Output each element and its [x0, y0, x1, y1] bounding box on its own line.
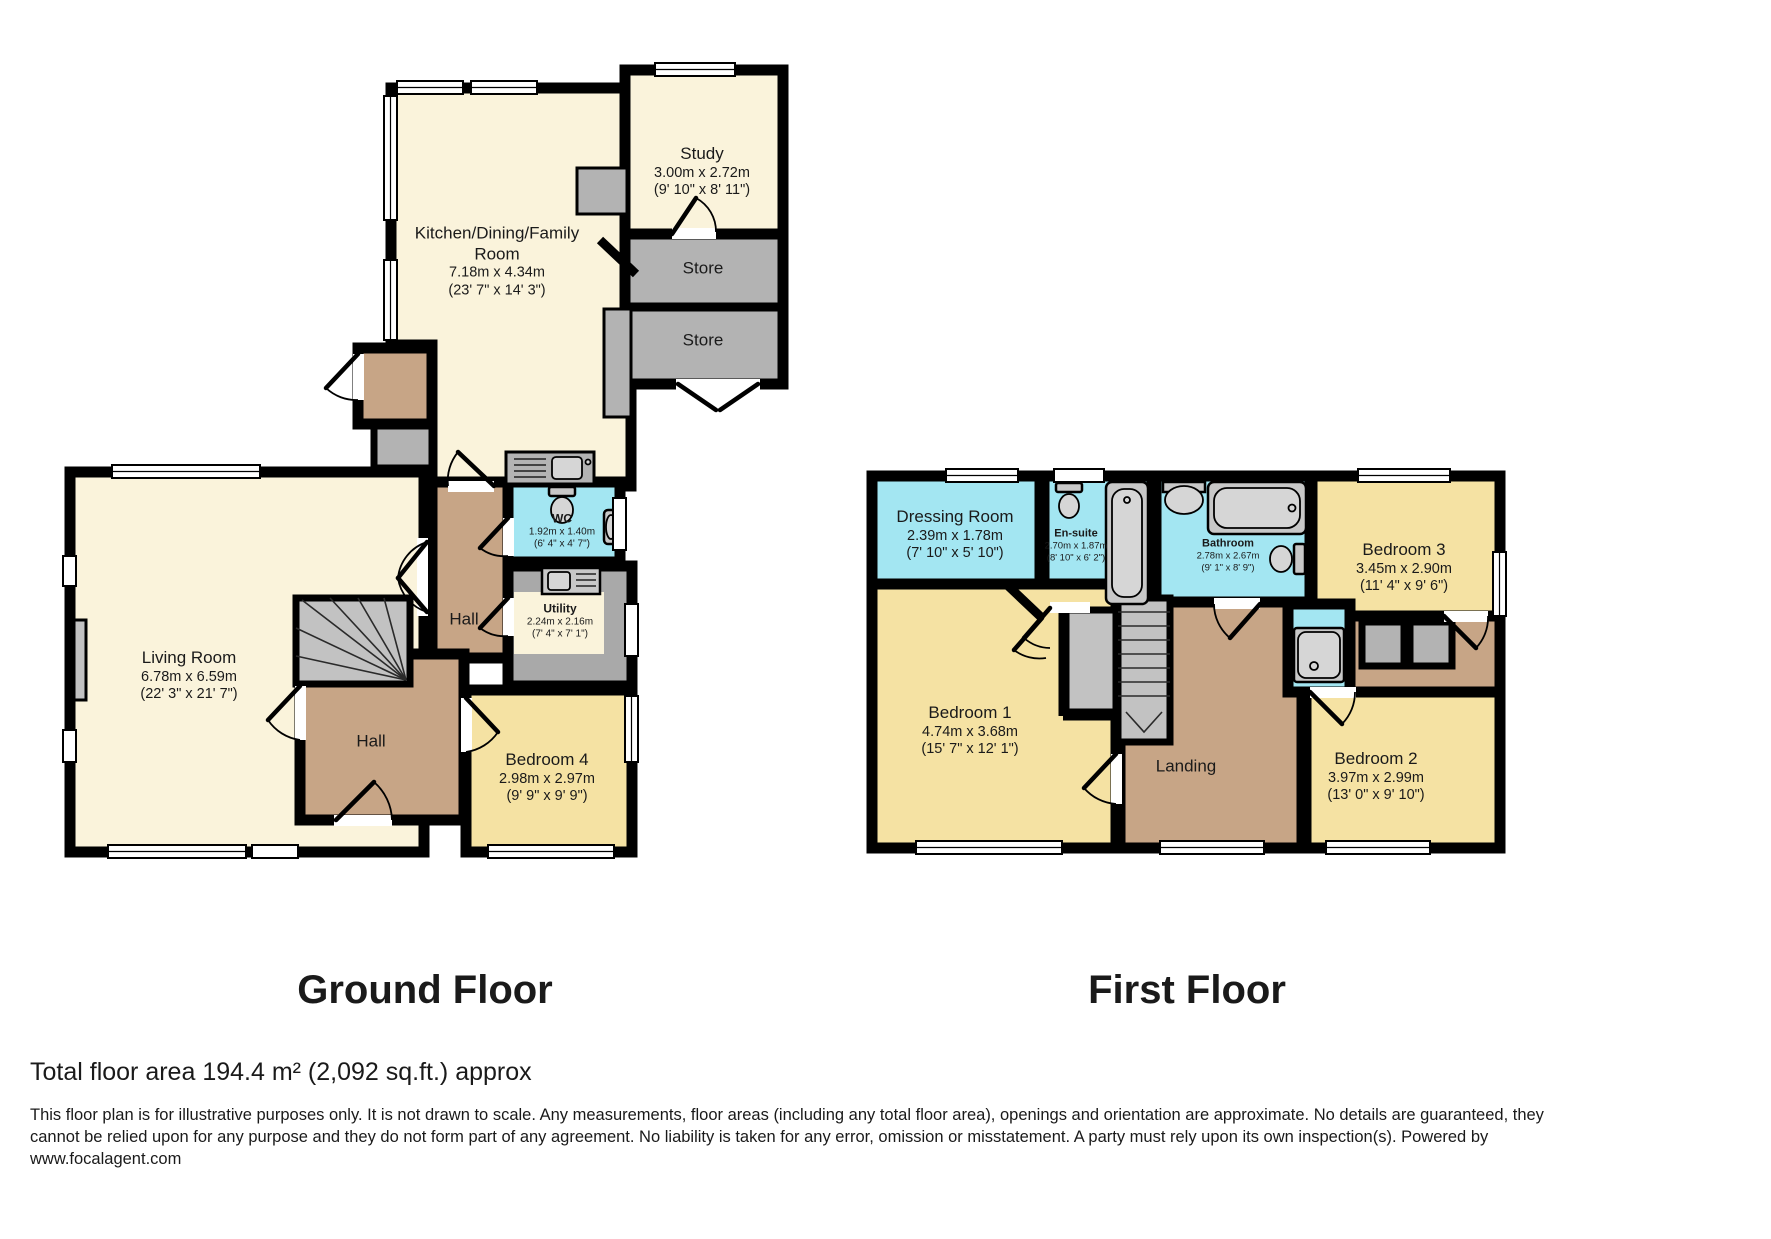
room-label-bedroom3: Bedroom 3 3.45m x 2.90m (11' 4" x 9' 6"): [1356, 540, 1452, 596]
disclaimer-text: This floor plan is for illustrative purp…: [30, 1104, 1555, 1170]
total-floor-area: Total floor area 194.4 m² (2,092 sq.ft.)…: [30, 1058, 532, 1087]
room-label-study: Study 3.00m x 2.72m (9' 10" x 8' 11"): [654, 144, 750, 200]
shower-tray-icon: [1294, 628, 1344, 682]
bathroom-basin-icon: [1163, 482, 1205, 514]
first-floor-title: First Floor: [1088, 968, 1286, 1013]
room-label-landing: Landing: [1156, 757, 1217, 778]
utility-sink-icon: [542, 568, 600, 594]
chimney-strip: [604, 309, 631, 417]
room-label-store-lower: Store: [683, 331, 724, 352]
room-label-living: Living Room 6.78m x 6.59m (22' 3" x 21' …: [140, 648, 237, 704]
kitchen-chimney: [577, 168, 627, 214]
floorplan-page: Kitchen/Dining/Family Room 7.18m x 4.34m…: [0, 0, 1771, 1239]
room-label-bathroom: Bathroom 2.78m x 2.67m (9' 1" x 8' 9"): [1197, 538, 1260, 575]
bathroom-bath-icon: [1208, 482, 1306, 534]
ensuite-bath-icon: [1106, 482, 1148, 604]
closet-2: [1410, 622, 1452, 666]
room-label-bedroom4: Bedroom 4 2.98m x 2.97m (9' 9" x 9' 9"): [499, 750, 595, 806]
room-label-store-upper: Store: [683, 259, 724, 280]
ground-floor-title: Ground Floor: [297, 968, 553, 1013]
room-label-kitchen: Kitchen/Dining/Family Room 7.18m x 4.34m…: [399, 224, 595, 301]
room-label-utility: Utility 2.24m x 2.16m (7' 4" x 7' 1"): [527, 602, 593, 641]
closet-1: [1362, 622, 1404, 666]
room-label-hall-upper: Hall: [449, 610, 478, 631]
room-label-bedroom2: Bedroom 2 3.97m x 2.99m (13' 0" x 9' 10"…: [1327, 749, 1424, 805]
room-label-bedroom1: Bedroom 1 4.74m x 3.68m (15' 7" x 12' 1"…: [921, 703, 1018, 759]
ensuite-toilet-icon: [1056, 483, 1082, 518]
staircase-ground: [296, 598, 410, 684]
cupboard: [374, 426, 432, 468]
living-chimney: [74, 620, 86, 700]
staircase-first: [1063, 598, 1170, 742]
room-label-hall-lower: Hall: [356, 732, 385, 753]
room-label-dressing: Dressing Room 2.39m x 1.78m (7' 10" x 5'…: [896, 507, 1013, 563]
floorplan-svg: [0, 0, 1771, 960]
room-hall-upper: [432, 482, 508, 658]
room-label-ensuite: En-suite 2.70m x 1.87m (8' 10" x 6' 2"): [1045, 528, 1108, 565]
room-label-wc: WC 1.92m x 1.40m (6' 4" x 4' 7"): [529, 512, 595, 551]
bathroom-toilet-icon: [1270, 544, 1305, 574]
kitchen-sink-icon: [506, 452, 594, 484]
room-vestibule: [358, 348, 432, 424]
